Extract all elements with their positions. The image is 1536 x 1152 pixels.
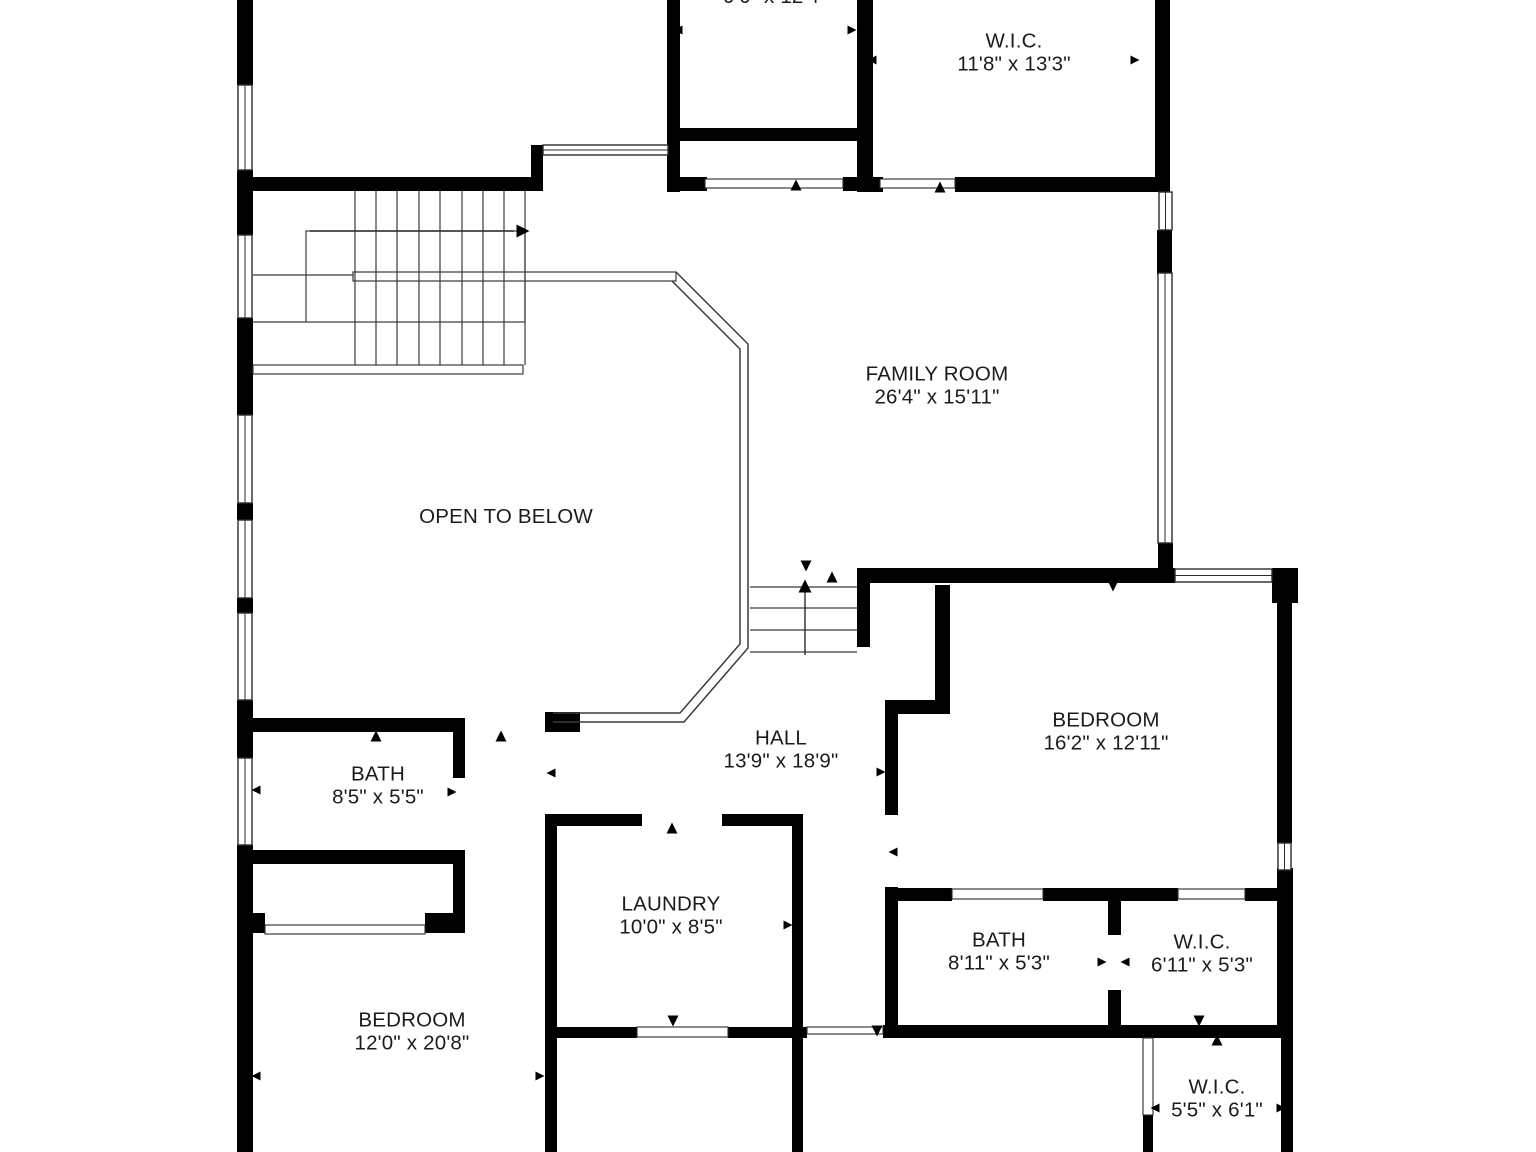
stair-outline [353,272,676,281]
wall [545,814,642,826]
wall [1108,901,1121,935]
dimension-arrow [784,921,793,930]
room-dimensions: 16'2" x 12'11" [1043,732,1168,755]
room-label-upper-room: 9'6" x 12'4" [723,0,826,8]
room-label-hall: HALL13'9" x 18'9" [723,728,838,773]
wall [237,598,253,613]
wall [1272,568,1298,603]
room-dimensions: 8'11" x 5'3" [948,952,1050,975]
wall [667,177,707,191]
room-name: W.I.C. [957,31,1071,54]
open-to-below-railing [553,281,740,713]
wall [237,503,253,520]
room-dimensions: 10'0" x 8'5" [619,916,722,939]
open-to-below-railing [553,272,748,722]
opening-threshold [265,925,425,934]
door-marker [1108,581,1119,592]
wall [237,318,253,415]
room-name: BEDROOM [354,1010,469,1033]
wall [667,128,870,141]
room-label-wic-top: W.I.C.11'8" x 13'3" [957,31,1071,76]
wall [1108,990,1121,1026]
wall [857,0,873,192]
room-name: BATH [948,930,1050,953]
dimension-arrow [448,788,457,797]
dimension-arrow [889,848,898,857]
room-dimensions: 11'8" x 13'3" [957,53,1071,76]
door-marker [496,731,507,742]
room-dimensions: 5'5" x 6'1" [1171,1099,1263,1122]
wall [1143,1115,1153,1152]
room-label-bath-right: BATH8'11" x 5'3" [948,930,1050,975]
wall [955,177,1157,192]
wall [843,177,873,191]
wall [935,585,950,712]
room-dimensions: 13'9" x 18'9" [723,750,838,773]
wall [237,700,253,758]
wall [883,1025,1283,1038]
wall [1157,230,1172,275]
wall [237,177,533,191]
floorplan-canvas [0,0,1536,1152]
opening-threshold [637,1027,728,1037]
wall [237,845,253,1152]
dimension-arrow [536,1072,545,1081]
dimension-arrow [877,768,886,777]
wall [253,850,465,864]
wall [531,145,543,191]
room-name: BATH [332,764,424,787]
dimension-arrow [547,769,556,778]
wall [237,0,253,85]
wall [728,1027,807,1038]
room-label-laundry: LAUNDRY10'0" x 8'5" [619,894,722,939]
wall [885,887,898,1038]
wall [1277,603,1292,843]
door-marker [371,731,382,742]
room-dimensions: 8'5" x 5'5" [332,786,424,809]
wall [722,814,803,826]
room-name: HALL [723,728,838,751]
room-label-wic-mid: W.I.C.6'11" x 5'3" [1151,932,1253,977]
door-marker [801,561,812,572]
opening-threshold [1178,889,1245,899]
wall [857,568,1175,583]
room-name: OPEN TO BELOW [419,506,593,529]
wall [545,1038,557,1152]
stair-outline [306,231,525,322]
opening-threshold [880,179,955,188]
wall [237,913,265,933]
opening-threshold [705,179,843,188]
wall [1245,888,1293,901]
opening-threshold [807,1027,883,1034]
stair-arrow-head [799,580,812,593]
wall [1043,888,1178,901]
door-marker [667,823,678,834]
wall [453,718,465,778]
room-label-bedroom-left: BEDROOM12'0" x 20'8" [354,1010,469,1055]
room-name: FAMILY ROOM [866,364,1009,387]
floorplan: 9'6" x 12'4"W.I.C.11'8" x 13'3"FAMILY RO… [0,0,1536,1152]
wall [857,575,870,647]
opening-threshold [253,365,523,374]
wall [898,888,952,901]
door-marker [668,1016,679,1027]
wall [1281,1028,1293,1152]
dimension-arrow [252,786,261,795]
room-dimensions: 9'6" x 12'4" [723,0,826,8]
wall [253,718,465,732]
room-label-wic-bottom: W.I.C.5'5" x 6'1" [1171,1077,1263,1122]
wall [885,714,898,815]
wall [1155,0,1170,192]
room-dimensions: 12'0" x 20'8" [354,1032,469,1055]
room-label-family-room: FAMILY ROOM26'4" x 15'11" [866,364,1009,409]
room-name: LAUNDRY [619,894,722,917]
room-label-bedroom-right: BEDROOM16'2" x 12'11" [1043,710,1168,755]
opening-threshold [1143,1038,1153,1115]
room-name: W.I.C. [1151,932,1253,955]
door-marker [827,572,838,583]
wall [545,1027,637,1038]
wall [885,700,950,714]
dimension-arrow [1098,958,1107,967]
dimension-arrow [848,26,857,35]
stair-arrow-head [517,225,530,238]
room-dimensions: 26'4" x 15'11" [866,386,1009,409]
dimension-arrow [1131,56,1140,65]
door-marker [1194,1016,1205,1027]
room-label-bath-left: BATH8'5" x 5'5" [332,764,424,809]
room-label-open-to-below: OPEN TO BELOW [419,506,593,529]
room-name: BEDROOM [1043,710,1168,733]
opening-threshold [952,889,1043,899]
wall [792,814,803,1152]
dimension-arrow [1121,958,1130,967]
wall [425,913,465,933]
room-name: W.I.C. [1171,1077,1263,1100]
room-dimensions: 6'11" x 5'3" [1151,954,1253,977]
